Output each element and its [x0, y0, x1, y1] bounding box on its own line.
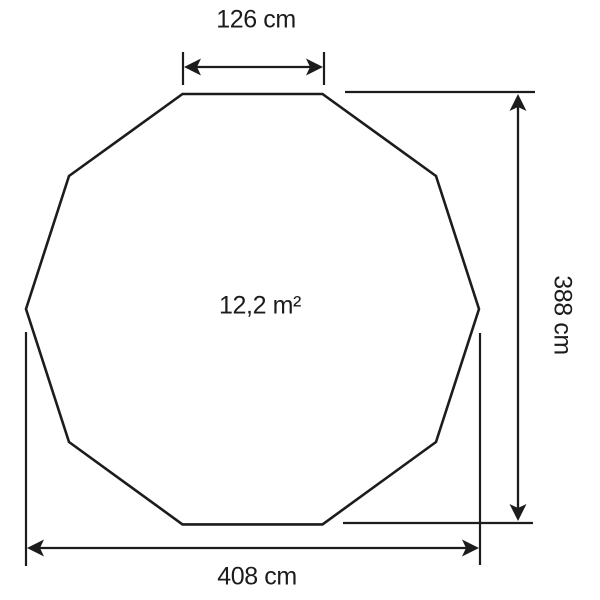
area-label: 12,2 m² [219, 294, 301, 319]
top-width-dimension [183, 52, 324, 85]
height-dimension [343, 92, 535, 523]
dimension-diagram: 126 cm 12,2 m² 388 cm 408 cm [0, 0, 600, 600]
top-width-label: 126 cm [216, 8, 296, 33]
bottom-width-label: 408 cm [217, 565, 297, 590]
height-label: 388 cm [550, 275, 575, 355]
bottom-width-dimension [26, 332, 480, 566]
